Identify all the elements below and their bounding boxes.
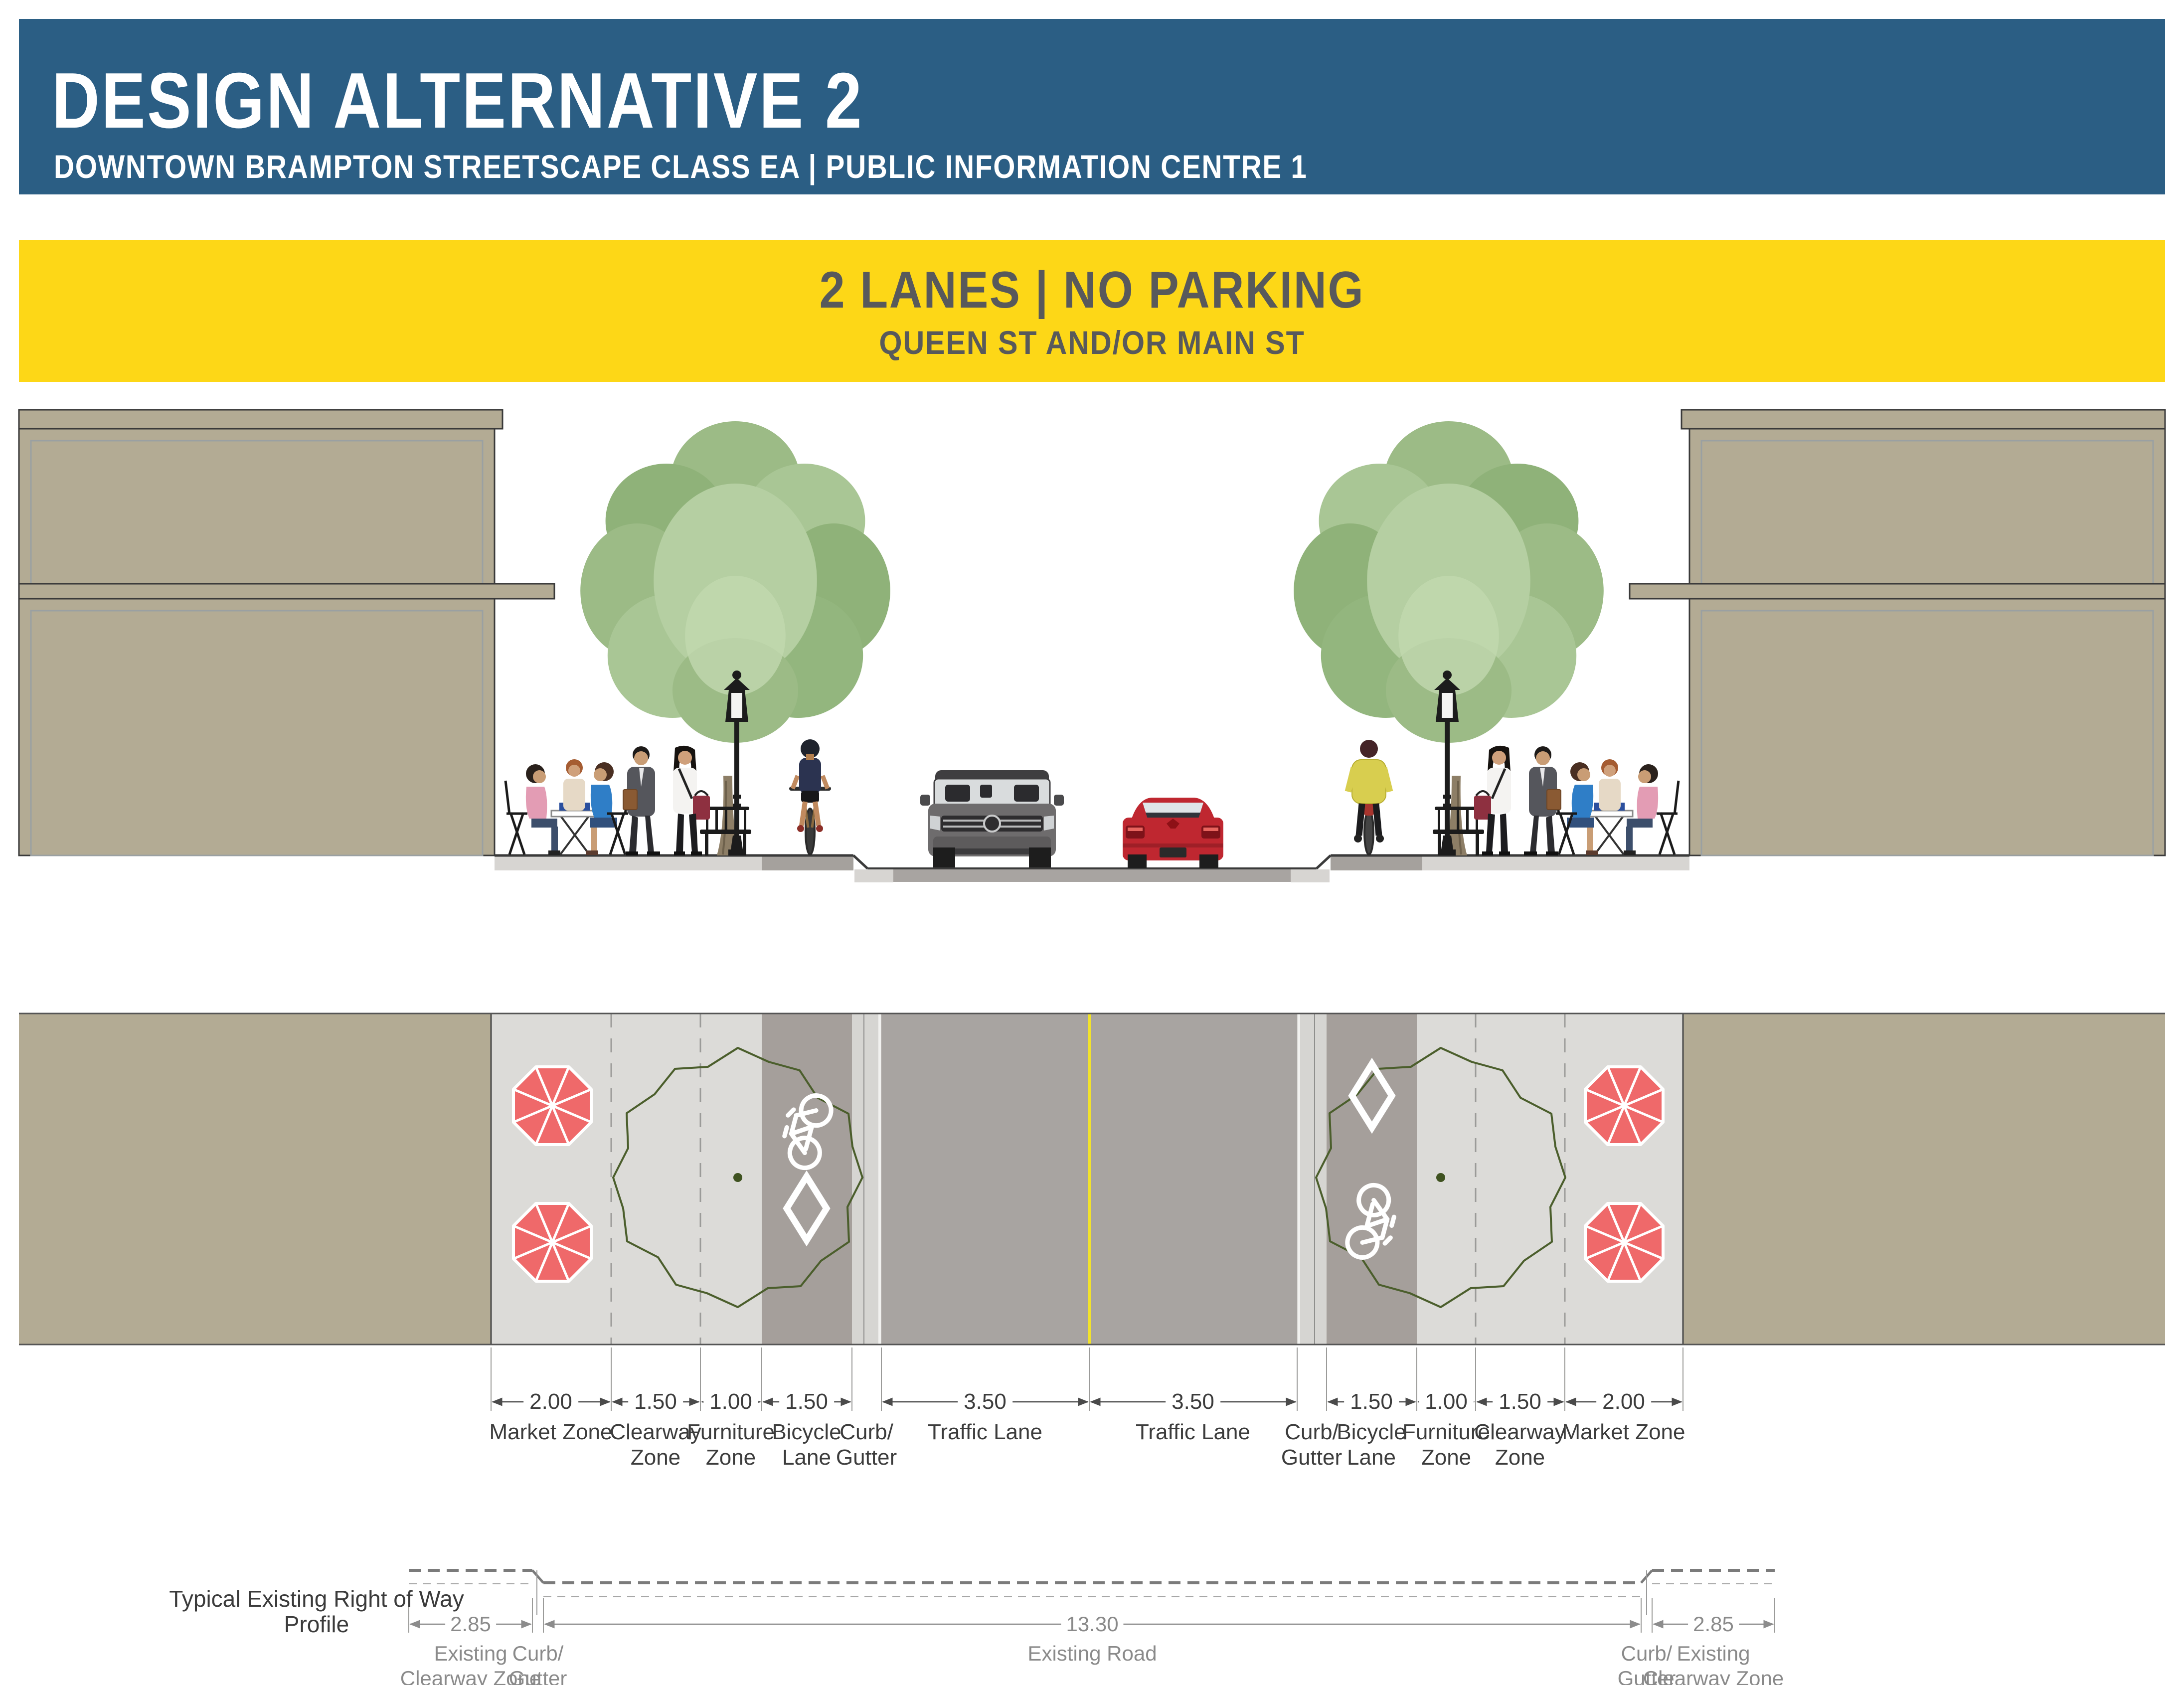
dim-value: 2.00	[1596, 1391, 1651, 1413]
road-centerline	[1088, 1013, 1091, 1345]
umbrella-icon	[1585, 1203, 1663, 1281]
profile-label: Curb/Gutter	[509, 1641, 567, 1685]
dim-value: 1.50	[1493, 1391, 1547, 1413]
profile-label: ExistingClearway Zone	[1643, 1641, 1784, 1685]
plan-view	[19, 1013, 2165, 1345]
zone-label: Market Zone	[1562, 1420, 1685, 1445]
cyclist-front	[789, 739, 831, 854]
dim-value: 3.50	[958, 1391, 1012, 1413]
plan-curb-left	[852, 1013, 881, 1345]
plan-curb-right	[1297, 1013, 1327, 1345]
zone-label: Curb/Gutter	[1281, 1420, 1342, 1470]
suv-front-icon	[920, 770, 1064, 867]
dim-value: 3.50	[1166, 1391, 1220, 1413]
plan-building-left	[19, 1013, 491, 1345]
plan-sidewalk-left	[491, 1013, 762, 1345]
cafe-patio-group	[505, 759, 629, 855]
zone-label: BicycleLane	[1337, 1420, 1406, 1470]
zone-label: Curb/Gutter	[836, 1420, 897, 1470]
profile-dim-value: 2.85	[1688, 1614, 1739, 1635]
umbrella-icon	[513, 1203, 591, 1281]
cyclist-rear	[1348, 740, 1390, 854]
pedestrian-man	[623, 746, 660, 855]
profile-label: Existing Road	[1027, 1641, 1157, 1666]
umbrella-icon	[513, 1067, 591, 1145]
zone-label: Traffic Lane	[1136, 1420, 1250, 1445]
poster: DESIGN ALTERNATIVE 2 DOWNTOWN BRAMPTON S…	[0, 0, 2184, 1685]
building-facade	[19, 410, 554, 855]
profile-dim-value: 2.85	[445, 1614, 496, 1635]
zone-label: ClearwayZone	[1474, 1420, 1565, 1470]
folding-chair-icon	[505, 781, 527, 854]
car-rear-icon	[1123, 798, 1223, 868]
plan-building-right	[1683, 1013, 2165, 1345]
umbrella-icon	[1585, 1067, 1663, 1145]
plan-sidewalk-right	[1417, 1013, 1683, 1345]
dim-value: 2.00	[523, 1391, 578, 1413]
dim-value: 1.00	[1419, 1391, 1474, 1413]
dim-value: 1.50	[1344, 1391, 1399, 1413]
profile-dim-value: 13.30	[1061, 1614, 1123, 1635]
zone-label: BicycleLane	[772, 1420, 841, 1470]
profile-title: Typical Existing Right of Way Profile	[165, 1586, 469, 1637]
pedestrian-woman	[673, 746, 710, 855]
dim-value: 1.50	[628, 1391, 683, 1413]
zone-label: FurnitureZone	[687, 1420, 775, 1470]
zone-label: Traffic Lane	[928, 1420, 1042, 1445]
right-streetscape	[1092, 410, 2165, 882]
streetscape-diagram	[0, 0, 2184, 1685]
dim-value: 1.00	[703, 1391, 758, 1413]
dim-value: 1.50	[779, 1391, 834, 1413]
zone-label: Market Zone	[490, 1420, 613, 1445]
elevation-view	[19, 410, 2165, 882]
